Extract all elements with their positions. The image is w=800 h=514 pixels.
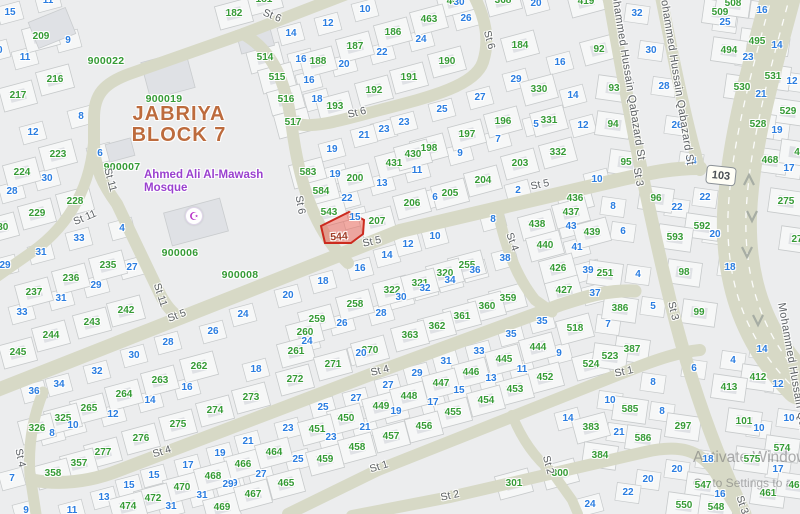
house-number-label: 25 [317,403,328,413]
parcel-number-label: 387 [624,345,641,355]
house-number-label: 14 [381,251,392,261]
house-number-label: 36 [28,387,39,397]
parcel-number-label: 508 [725,0,742,9]
house-number-label: 24 [301,337,312,347]
house-number-label: 28 [375,309,386,319]
house-number-label: 4 [730,356,736,366]
parcel-number-label: 360 [479,302,496,312]
parcel-number-label: 251 [597,269,614,279]
house-number-label: 19 [326,145,337,155]
parcel-number-label: 474 [120,502,137,512]
house-number-label: 12 [107,410,118,420]
house-number-label: 29 [222,480,233,490]
house-number-label: 29 [510,75,521,85]
mosque-name-label: Ahmed Ali Al-Mawash Mosque [144,169,263,195]
parcel-number-label: 448 [401,392,418,402]
parcel-number-label: 357 [71,459,88,469]
house-number-label: 28 [162,338,173,348]
house-number-label: 35 [536,317,547,327]
parcel-number-label: 465 [278,479,295,489]
house-number-label: 19 [390,407,401,417]
house-number-label: 6 [620,227,626,237]
parcel-number-label: 412 [750,373,767,383]
house-number-label: 20 [642,475,653,485]
house-number-label: 27 [255,470,266,480]
parcel-number-label: 235 [100,261,117,271]
house-number-label: 10 [429,232,440,242]
parcel-number-label: 331 [541,116,558,126]
house-number-label: 28 [658,82,669,92]
house-number-label: 30 [453,0,464,8]
house-number-label: 8 [49,429,55,439]
parcel-number-label: 188 [310,57,327,67]
parcel-number-label: 205 [442,189,459,199]
parcel-number-label: 243 [84,318,101,328]
parcel-number-label: 524 [583,360,600,370]
house-number-label: 13 [98,493,109,503]
parcel-number-label: 203 [512,159,529,169]
parcel-number-label: 430 [405,150,422,160]
house-number-label: 8 [659,407,665,417]
parcel-number-label: 452 [537,373,554,383]
parcel-number-label: 242 [118,306,135,316]
parcel-number-label: 447 [433,379,450,389]
house-number-label: 24 [584,500,595,510]
house-number-label: 10 [359,5,370,15]
house-number-label: 16 [554,58,565,68]
parcel-number-label: 273 [243,393,260,403]
house-number-label: 13 [376,179,387,189]
parcel-number-label: 197 [459,130,476,140]
house-number-label: 9 [65,36,71,46]
house-number-label: 35 [505,330,516,340]
house-number-label: 27 [382,381,393,391]
house-number-label: 37 [589,289,600,299]
house-number-label: 32 [631,9,642,19]
parcel-number-label: 451 [309,425,326,435]
parcel-number-label: 275 [778,197,795,207]
house-number-label: 32 [91,367,102,377]
road [30,392,43,514]
parcel-number-label: 449 [373,402,390,412]
parcel-number-label: 437 [563,208,580,218]
house-number-label: 15 [148,471,159,481]
house-number-label: 23 [378,125,389,135]
parcel-number-label: 440 [537,241,554,251]
parcel-number-label: 468 [205,472,222,482]
house-number-label: 10 [783,414,794,424]
house-number-label: 18 [311,95,322,105]
parcel-number-label: 217 [10,91,27,101]
house-number-label: 11 [67,506,78,514]
parcel-number-label: 186 [385,28,402,38]
highlighted-plot-number-label: 544 [330,231,348,243]
house-number-label: 23 [282,424,293,434]
house-number-label: 18 [250,365,261,375]
parcel-number-label: 530 [734,83,751,93]
house-number-label: 34 [444,276,455,286]
house-number-label: 16 [714,490,725,500]
house-number-label: 31 [440,357,451,367]
house-number-label: 4 [635,270,641,280]
parcel-number-label: 236 [63,274,80,284]
parcel-number-label: 94 [607,120,618,130]
parcel-number-label: 207 [369,217,386,227]
house-number-label: 14 [562,414,573,424]
parcel-number-label: 466 [235,460,252,470]
parcel-number-label: 261 [288,347,305,357]
house-number-label: 30 [41,174,52,184]
parcel-number-label: 450 [338,414,355,424]
parcel-number-label: 96 [650,194,661,204]
parcel-number-label: 46 [788,481,799,491]
route-103-badge: 103 [705,164,737,186]
house-number-label: 14 [144,396,155,406]
house-number-label: 33 [16,308,27,318]
house-number-label: 32 [419,284,430,294]
house-number-label: 25 [292,455,303,465]
parcel-number-label: 518 [567,324,584,334]
house-number-label: 7 [495,135,501,145]
parcel-number-label: 206 [404,199,421,209]
street-name-label: St 6 [293,195,307,215]
house-number-label: 17 [427,398,438,408]
parcel-number-label: 470 [174,483,191,493]
house-number-label: 10 [0,46,3,56]
house-number-label: 21 [359,423,370,433]
parcel-number-label: 523 [602,352,619,362]
parcel-number-label: 193 [327,102,344,112]
house-number-label: 9 [457,149,463,159]
parcel-number-label: 458 [349,443,366,453]
house-number-label: 6 [691,364,697,374]
house-number-label: 23 [398,118,409,128]
district-title-line1: JABRIYA [104,104,254,125]
block-id-label: 900019 [146,94,183,105]
parcel-number-label: 191 [401,73,418,83]
parcel-number-label: 453 [507,385,524,395]
house-number-label: 27 [126,263,137,273]
parcel-number-label: 192 [366,86,383,96]
house-number-label: 24 [237,310,248,320]
house-number-label: 25 [719,18,730,28]
parcel-number-label: 575 [744,455,761,465]
parcel-number-label: 550 [676,501,693,511]
parcel-number-label: 204 [475,176,492,186]
parcel-number-label: 386 [612,304,629,314]
parcel-number-label: 528 [750,120,767,130]
house-number-label: 11 [412,166,423,176]
parcel-number-label: 455 [445,408,462,418]
parcel-number-label: 363 [402,331,419,341]
house-number-label: 7 [605,320,611,330]
house-number-label: 28 [6,187,17,197]
parcel-number-label: 445 [496,355,513,365]
parcel-number-label: 574 [774,444,791,454]
house-number-label: 16 [756,6,767,16]
parcel-number-label: 469 [214,503,231,513]
parcel-number-label: 362 [429,322,446,332]
house-number-label: 22 [622,488,633,498]
house-number-label: 31 [35,248,46,258]
parcel-number-label: 216 [47,75,64,85]
house-number-label: 10 [604,396,615,406]
parcel-number-label: 229 [29,209,46,219]
house-number-label: 34 [53,380,64,390]
house-number-label: 33 [473,347,484,357]
house-number-label: 30 [128,351,139,361]
parcel-number-label: 464 [266,448,283,458]
house-number-label: 39 [582,266,593,276]
parcel-number-label: 230 [0,223,8,233]
parcel-number-label: 187 [347,42,364,52]
house-number-label: 12 [27,128,38,138]
parcel-number-label: 439 [584,228,601,238]
parcel-number-label: 275 [170,420,187,430]
house-number-label: 9 [23,506,29,514]
house-number-label: 12 [577,121,588,131]
house-number-label: 6 [432,193,438,203]
house-number-label: 20 [355,349,366,359]
house-number-label: 30 [395,293,406,303]
house-number-label: 16 [181,383,192,393]
parcel-number-label: 446 [463,368,480,378]
parcel-number-label: 263 [152,376,169,386]
parcel-number-label: 359 [500,294,517,304]
house-number-label: 43 [565,222,576,232]
parcel-number-label: 93 [608,84,619,94]
parcel-number-label: 456 [416,422,433,432]
house-number-label: 8 [650,378,656,388]
house-number-label: 12 [786,77,797,87]
block-id-label: 900008 [222,270,259,281]
parcel-number-label: 586 [635,434,652,444]
house-number-label: 11 [20,53,31,63]
parcel-number-label: 330 [531,85,548,95]
house-number-label: 22 [341,194,352,204]
parcel-number-label: 592 [694,222,711,232]
parcel-number-label: 438 [529,220,546,230]
house-number-label: 2 [515,186,521,196]
house-number-label: 23 [742,53,753,63]
house-number-label: 25 [436,105,447,115]
house-number-label: 29 [411,369,422,379]
house-number-label: 27 [474,93,485,103]
parcel-number-label: 99 [693,308,704,318]
house-number-label: 36 [469,266,480,276]
house-number-label: 5 [650,302,656,312]
parcel-number-label: 515 [269,73,286,83]
house-number-label: 31 [196,491,207,501]
house-number-label: 38 [499,254,510,264]
parcel-number-label: 358 [45,469,62,479]
parcel-number-label: 427 [556,286,573,296]
house-number-label: 21 [358,131,369,141]
parcel-number-label: 27 [791,235,800,245]
house-number-label: 5 [533,120,539,130]
house-number-label: 21 [242,437,253,447]
parcel-number-label: 454 [478,396,495,406]
house-number-label: 15 [349,213,360,223]
parcel-number-label: 494 [721,46,738,56]
parcel-number-label: 258 [347,300,364,310]
house-number-label: 15 [4,8,15,18]
parcel-number-label: 271 [325,360,342,370]
house-number-label: 7 [9,474,15,484]
house-number-label: 8 [490,215,496,225]
street-name-label: St 3 [631,167,645,187]
mosque-crescent-icon[interactable]: ☪ [185,207,203,225]
house-number-label: 15 [123,481,134,491]
map-canvas[interactable]: JABRIYA BLOCK 7 Ahmed Ali Al-Mawash Mosq… [0,0,800,514]
house-number-label: 11 [517,365,528,375]
house-number-label: 22 [671,203,682,213]
district-title: JABRIYA BLOCK 7 [104,104,254,146]
parcel-number-label: 531 [765,72,782,82]
house-number-label: 24 [415,35,426,45]
house-number-label: 27 [350,394,361,404]
house-number-label: 21 [755,90,766,100]
house-number-label: 16 [295,55,306,65]
house-number-label: 11 [43,0,54,6]
parcel-number-label: 184 [512,41,529,51]
parcel-number-label: 209 [33,32,50,42]
parcel-number-label: 198 [421,144,438,154]
house-number-label: 23 [325,433,336,443]
house-number-label: 31 [165,502,176,512]
house-number-label: 26 [460,14,471,24]
house-number-label: 19 [771,126,782,136]
parcel-number-label: 244 [43,331,60,341]
parcel-number-label: 264 [116,390,133,400]
parcel-number-label: 583 [300,168,317,178]
parcel-number-label: 200 [347,174,364,184]
house-number-label: 21 [613,428,624,438]
house-number-label: 17 [772,465,783,475]
house-number-label: 29 [90,281,101,291]
house-number-label: 12 [772,380,783,390]
house-number-label: 13 [485,374,496,384]
house-number-label: 10 [753,424,764,434]
house-number-label: 31 [55,294,66,304]
parcel-number-label: 326 [29,424,46,434]
parcel-number-label: 383 [583,423,600,433]
house-number-label: 16 [354,264,365,274]
parcel-number-label: 245 [10,348,27,358]
parcel-number-label: 461 [760,489,777,499]
house-number-label: 26 [207,327,218,337]
house-number-label: 20 [671,465,682,475]
house-number-label: 22 [376,48,387,58]
parcel-number-label: 413 [721,383,738,393]
house-number-label: 12 [402,240,413,250]
house-number-label: 20 [530,0,541,9]
house-number-label: 6 [97,149,103,159]
parcel-number-label: 529 [780,107,797,117]
parcel-number-label: 224 [14,168,31,178]
house-number-label: 16 [303,76,314,86]
parcel-number-label: 463 [421,15,438,25]
parcel-number-label: 436 [567,194,584,204]
parcel-number-label: 426 [550,264,567,274]
parcel-number-label: 495 [749,37,766,47]
street-name-label: St 4 [13,448,27,468]
parcel-number-label: 593 [667,233,684,243]
house-number-label: 8 [610,202,616,212]
parcel-number-label: 457 [383,432,400,442]
parcel-number-label: 98 [678,268,689,278]
parcel-number-label: 332 [550,148,567,158]
parcel-number-label: 181 [256,0,273,5]
parcel-number-label: 228 [67,197,84,207]
parcel-number-label: 547 [695,481,712,491]
parcel-number-label: 514 [257,53,274,63]
house-number-label: 14 [567,91,578,101]
house-number-label: 41 [571,243,582,253]
house-number-label: 9 [556,349,562,359]
house-number-label: 20 [338,60,349,70]
parcel-number-label: 431 [386,159,403,169]
parcel-number-label: 272 [287,375,304,385]
parcel-number-label: 262 [191,362,208,372]
parcel-number-label: 274 [207,406,224,416]
house-number-label: 12 [322,19,333,29]
parcel-number-label: 101 [736,417,753,427]
parcel-number-label: 277 [95,448,112,458]
parcel-number-label: 237 [26,288,43,298]
parcel-number-label: 182 [226,9,243,19]
block-id-label: 900022 [88,56,125,67]
parcel-number-label: 301 [506,479,523,489]
house-number-label: 19 [214,449,225,459]
parcel-number-label: 4 [794,148,800,158]
house-number-label: 20 [282,291,293,301]
house-number-label: 14 [771,41,782,51]
house-number-label: 17 [783,164,794,174]
parcel-number-label: 95 [620,158,631,168]
parcel-number-label: 472 [145,494,162,504]
house-number-label: 14 [285,29,296,39]
parcel-number-label: 190 [439,57,456,67]
house-number-label: 22 [699,193,710,203]
parcel-number-label: 444 [530,343,547,353]
house-number-label: 29 [0,261,11,271]
parcel-number-label: 223 [50,150,67,160]
parcel-number-label: 368 [495,0,512,6]
house-number-label: 26 [336,319,347,329]
parcel-number-label: 265 [81,404,98,414]
house-number-label: 18 [317,277,328,287]
house-number-label: 10 [591,175,602,185]
parcel-number-label: 196 [495,117,512,127]
house-number-label: 19 [329,170,340,180]
parcel-number-label: 543 [321,208,338,218]
parcel-number-label: 92 [593,45,604,55]
house-number-label: 4 [119,224,125,234]
house-number-label: 8 [78,112,84,122]
district-title-line2: BLOCK 7 [104,125,254,146]
parcel-number-label: 548 [708,503,725,513]
parcel-number-label: 297 [675,422,692,432]
parcel-number-label: 585 [622,405,639,415]
parcel-number-label: 276 [133,434,150,444]
parcel-number-label: 584 [313,187,330,197]
parcel-number-label: 419 [578,0,595,7]
parcel-number-label: 259 [309,315,326,325]
parcel-number-label: 468 [762,156,779,166]
parcel-number-label: 467 [245,490,262,500]
house-number-label: 18 [724,263,735,273]
